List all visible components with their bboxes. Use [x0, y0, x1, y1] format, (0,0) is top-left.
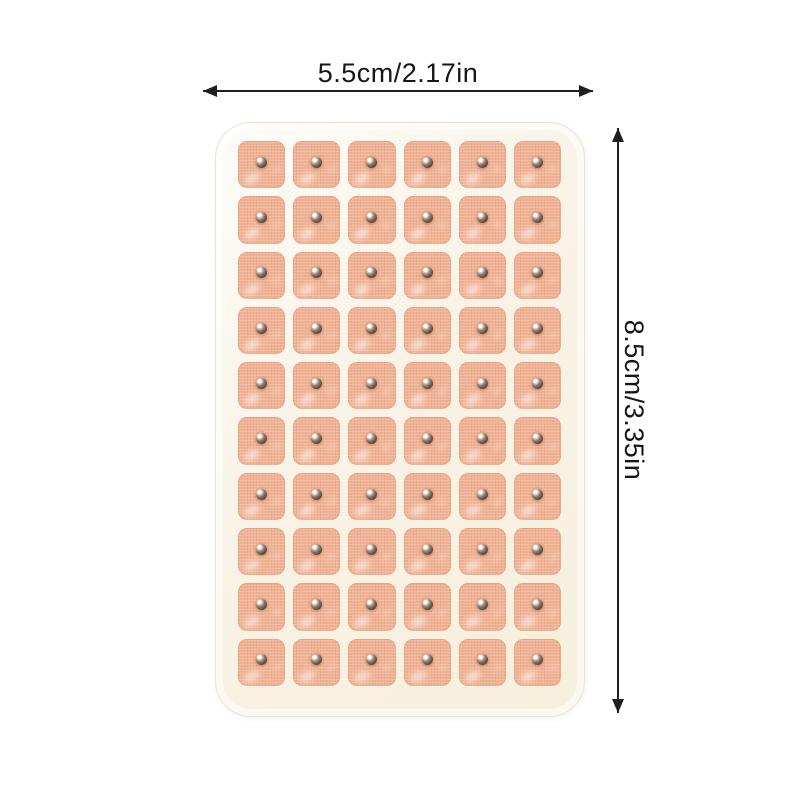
metal-bead — [256, 323, 267, 334]
adhesive-patch — [293, 141, 340, 188]
metal-bead — [256, 267, 267, 278]
metal-bead — [256, 654, 267, 665]
adhesive-patch — [348, 196, 395, 243]
adhesive-patch — [348, 417, 395, 464]
patch-grid — [238, 141, 561, 686]
product-photo: 5.5cm/2.17in 8.5cm/3.35in — [0, 0, 800, 800]
metal-bead — [477, 378, 488, 389]
metal-bead — [532, 599, 543, 610]
metal-bead — [256, 433, 267, 444]
adhesive-patch — [348, 528, 395, 575]
adhesive-patch — [514, 362, 561, 409]
metal-bead — [422, 212, 433, 223]
adhesive-patch — [293, 362, 340, 409]
adhesive-patch — [348, 362, 395, 409]
adhesive-patch — [348, 307, 395, 354]
adhesive-patch — [238, 196, 285, 243]
adhesive-patch — [293, 307, 340, 354]
adhesive-patch — [459, 252, 506, 299]
metal-bead — [366, 489, 377, 500]
metal-bead — [311, 212, 322, 223]
adhesive-patch — [293, 417, 340, 464]
metal-bead — [477, 157, 488, 168]
metal-bead — [311, 599, 322, 610]
adhesive-patch — [459, 473, 506, 520]
metal-bead — [422, 267, 433, 278]
metal-bead — [422, 489, 433, 500]
metal-bead — [311, 267, 322, 278]
adhesive-patch — [348, 473, 395, 520]
metal-bead — [366, 544, 377, 555]
metal-bead — [256, 212, 267, 223]
metal-bead — [256, 157, 267, 168]
adhesive-patch — [348, 252, 395, 299]
adhesive-patch — [238, 528, 285, 575]
adhesive-patch — [404, 528, 451, 575]
metal-bead — [532, 378, 543, 389]
metal-bead — [422, 323, 433, 334]
adhesive-patch — [238, 141, 285, 188]
metal-bead — [422, 544, 433, 555]
adhesive-patch — [459, 196, 506, 243]
adhesive-patch — [238, 417, 285, 464]
adhesive-patch — [238, 252, 285, 299]
adhesive-patch — [238, 473, 285, 520]
metal-bead — [532, 212, 543, 223]
metal-bead — [477, 489, 488, 500]
metal-bead — [256, 599, 267, 610]
metal-bead — [477, 212, 488, 223]
metal-bead — [256, 544, 267, 555]
metal-bead — [366, 599, 377, 610]
metal-bead — [366, 267, 377, 278]
metal-bead — [422, 433, 433, 444]
metal-bead — [311, 654, 322, 665]
metal-bead — [532, 654, 543, 665]
metal-bead — [366, 212, 377, 223]
adhesive-patch — [348, 639, 395, 686]
adhesive-patch — [404, 417, 451, 464]
metal-bead — [366, 378, 377, 389]
metal-bead — [311, 378, 322, 389]
metal-bead — [311, 157, 322, 168]
adhesive-patch — [293, 639, 340, 686]
adhesive-patch — [238, 639, 285, 686]
metal-bead — [256, 378, 267, 389]
adhesive-patch — [404, 639, 451, 686]
metal-bead — [422, 378, 433, 389]
adhesive-patch — [348, 583, 395, 630]
adhesive-patch — [459, 307, 506, 354]
adhesive-patch — [459, 639, 506, 686]
metal-bead — [532, 267, 543, 278]
adhesive-patch — [459, 362, 506, 409]
patch-sheet — [215, 122, 585, 717]
adhesive-patch — [404, 362, 451, 409]
metal-bead — [477, 599, 488, 610]
metal-bead — [366, 433, 377, 444]
metal-bead — [366, 157, 377, 168]
width-dimension-label: 5.5cm/2.17in — [203, 58, 593, 88]
adhesive-patch — [238, 307, 285, 354]
adhesive-patch — [514, 417, 561, 464]
metal-bead — [477, 433, 488, 444]
adhesive-patch — [293, 583, 340, 630]
metal-bead — [422, 599, 433, 610]
metal-bead — [477, 654, 488, 665]
metal-bead — [477, 323, 488, 334]
metal-bead — [477, 544, 488, 555]
metal-bead — [422, 157, 433, 168]
adhesive-patch — [404, 141, 451, 188]
metal-bead — [532, 433, 543, 444]
adhesive-patch — [514, 639, 561, 686]
adhesive-patch — [514, 252, 561, 299]
metal-bead — [311, 433, 322, 444]
width-dimension-arrow-icon — [203, 90, 593, 92]
adhesive-patch — [514, 583, 561, 630]
adhesive-patch — [404, 252, 451, 299]
metal-bead — [477, 267, 488, 278]
metal-bead — [311, 544, 322, 555]
adhesive-patch — [459, 528, 506, 575]
metal-bead — [311, 323, 322, 334]
adhesive-patch — [238, 362, 285, 409]
adhesive-patch — [404, 473, 451, 520]
adhesive-patch — [348, 141, 395, 188]
adhesive-patch — [459, 583, 506, 630]
metal-bead — [366, 654, 377, 665]
metal-bead — [422, 654, 433, 665]
metal-bead — [532, 489, 543, 500]
adhesive-patch — [459, 417, 506, 464]
adhesive-patch — [404, 307, 451, 354]
adhesive-patch — [514, 141, 561, 188]
height-dimension-label: 8.5cm/3.35in — [619, 315, 649, 485]
adhesive-patch — [514, 307, 561, 354]
adhesive-patch — [404, 196, 451, 243]
metal-bead — [532, 544, 543, 555]
metal-bead — [532, 157, 543, 168]
adhesive-patch — [238, 583, 285, 630]
adhesive-patch — [404, 583, 451, 630]
adhesive-patch — [459, 141, 506, 188]
metal-bead — [256, 489, 267, 500]
metal-bead — [311, 489, 322, 500]
adhesive-patch — [293, 252, 340, 299]
adhesive-patch — [293, 528, 340, 575]
metal-bead — [532, 323, 543, 334]
adhesive-patch — [514, 473, 561, 520]
adhesive-patch — [514, 196, 561, 243]
adhesive-patch — [514, 528, 561, 575]
metal-bead — [366, 323, 377, 334]
adhesive-patch — [293, 196, 340, 243]
adhesive-patch — [293, 473, 340, 520]
